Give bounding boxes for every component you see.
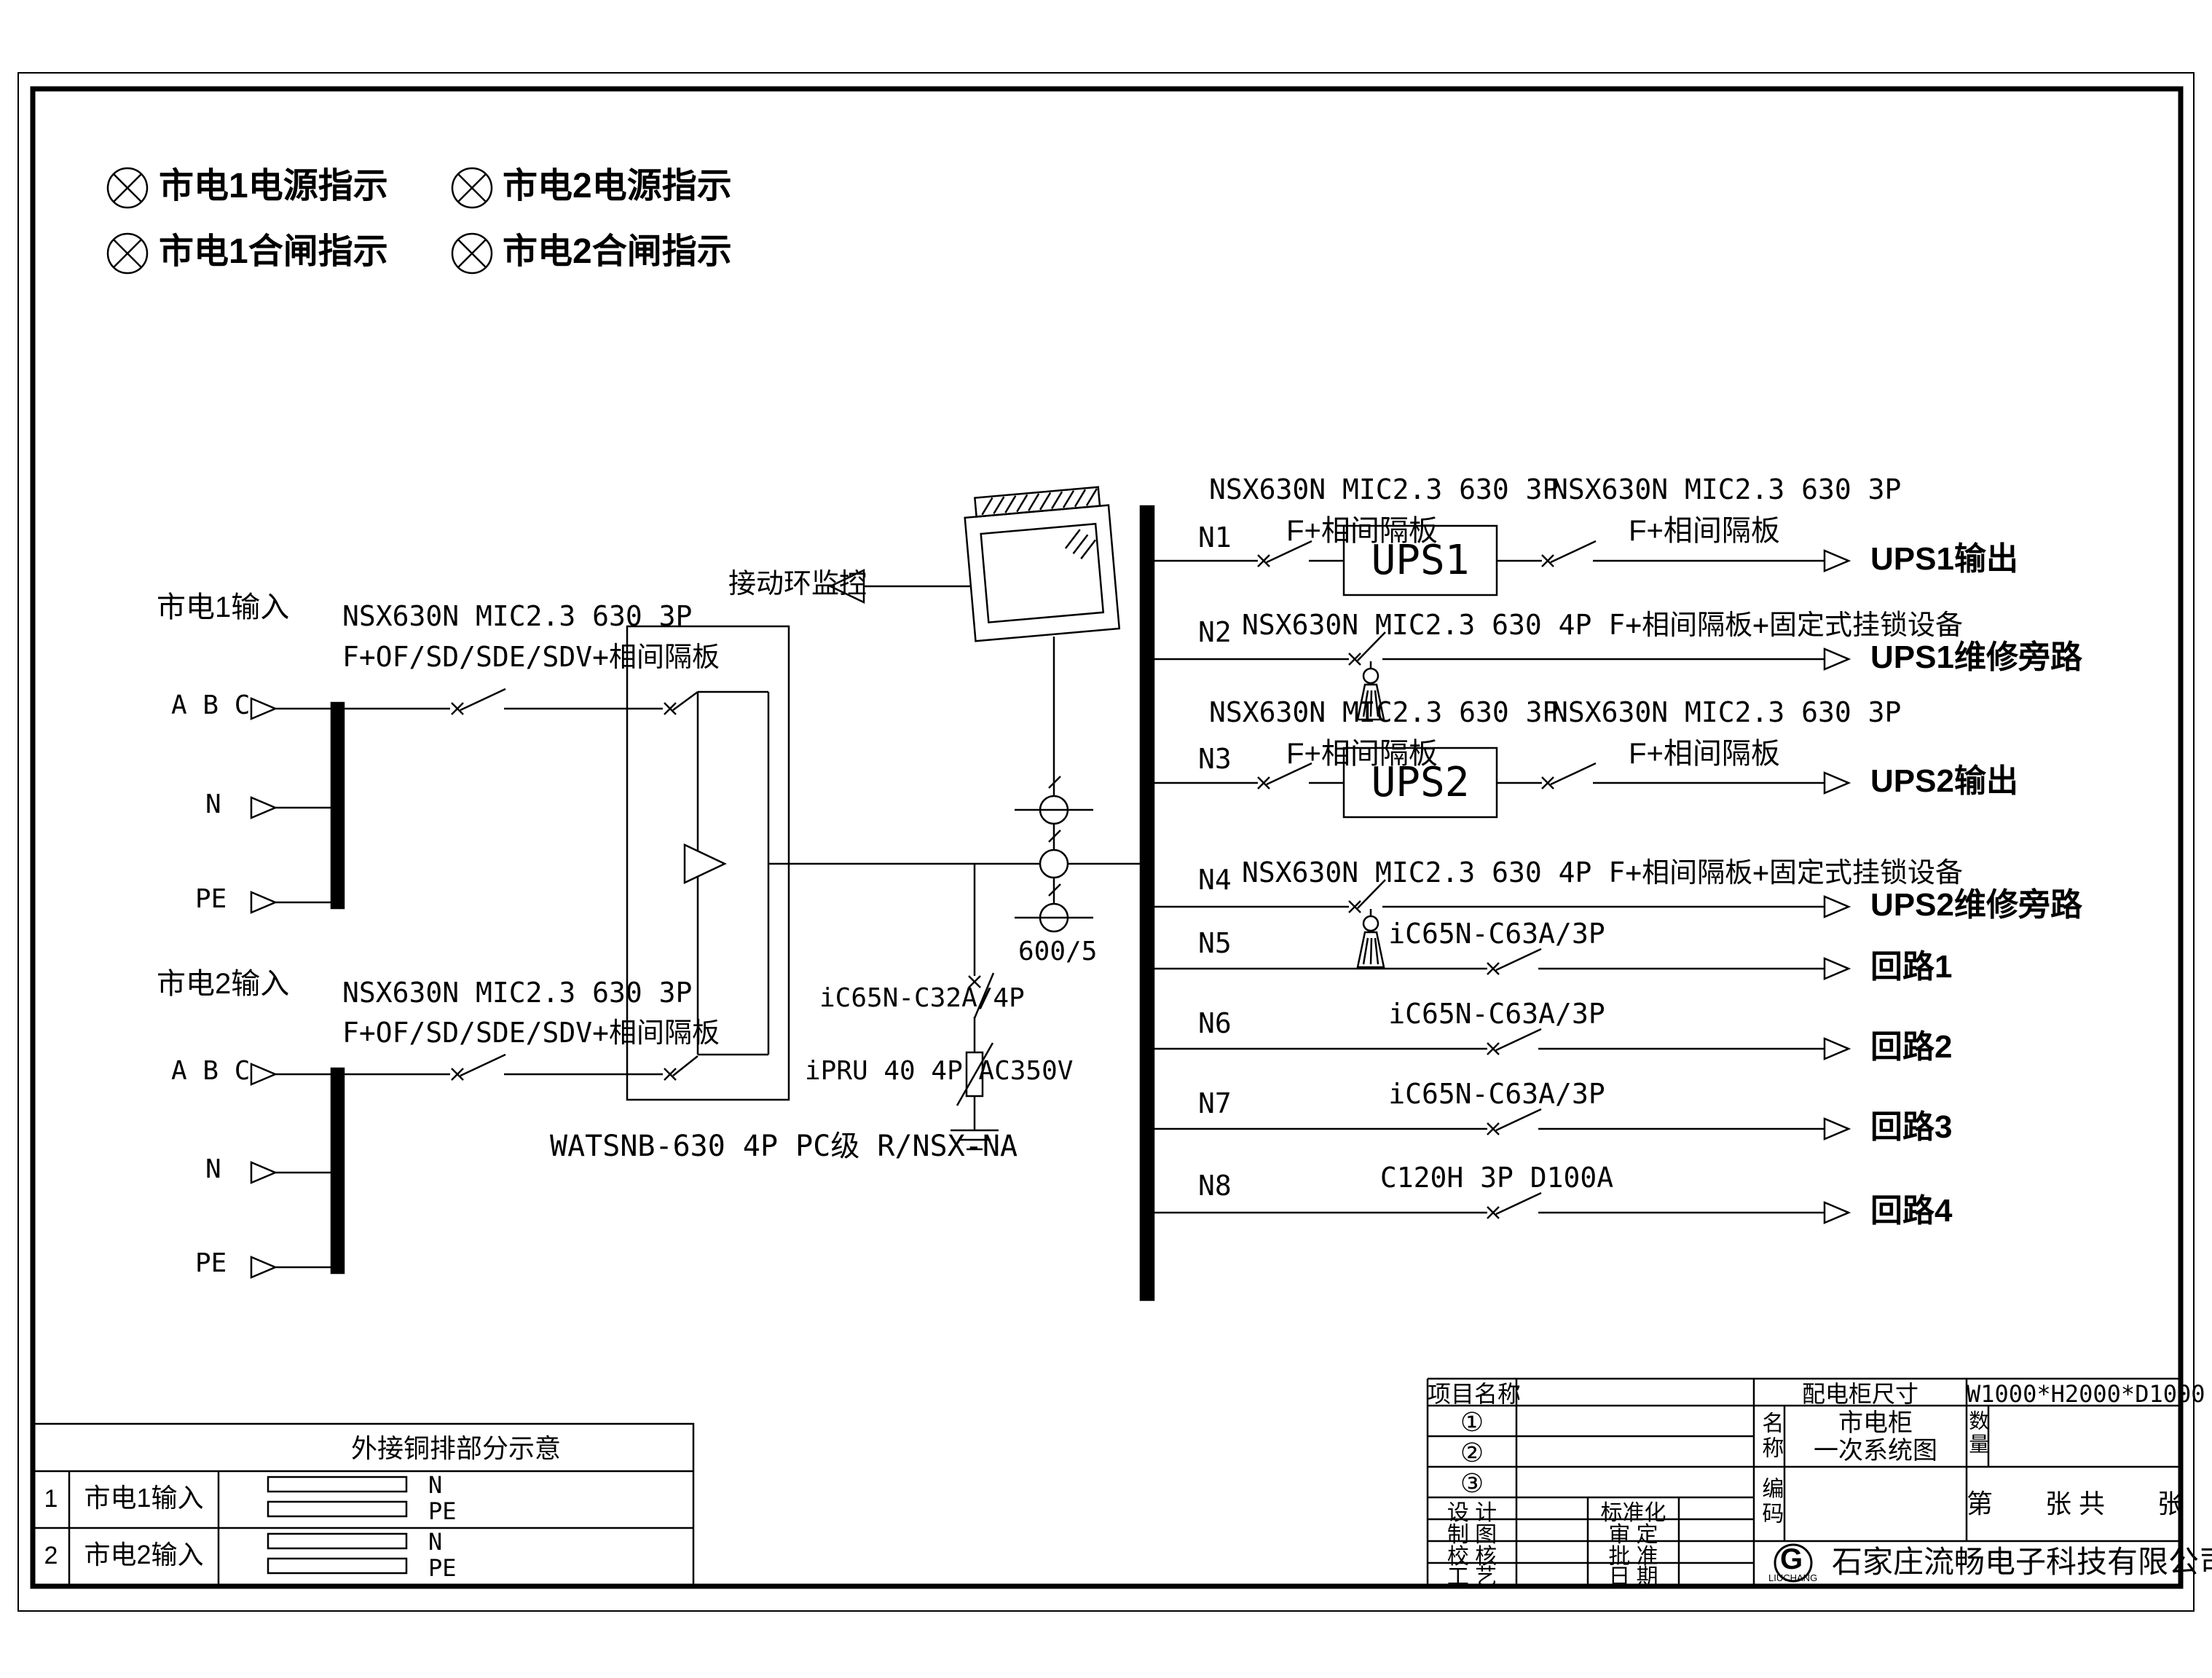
spd-breaker-label: iC65N-C32A/4P [819,985,965,1013]
tb-project-label: 项目名称 [1428,1382,1516,1407]
tb-sheet-counter: 第 张 共 张 [1967,1490,2181,1519]
n2-breaker-label: NSX630N MIC2.3 630 4P F+相间隔板+固定式挂锁设备 [1242,610,1963,640]
mains1-breaker-spec: F+OF/SD/SDE/SDV+相间隔板 [342,642,720,672]
output-circuit1: 回路1 [1870,950,1952,985]
mains2-pe-label: PE [195,1250,227,1278]
touchscreen-monitor-icon [963,487,1119,642]
tb-item3: ③ [1428,1470,1516,1498]
feeder-id-n2: N2 [1198,618,1232,647]
copper-row2-num: 2 [33,1543,69,1569]
tb-item2: ② [1428,1439,1516,1468]
output-ups1-bypass: UPS1维修旁路 [1870,640,2082,675]
legend-mains2-power: 市电2电源指示 [503,168,732,205]
tb-name-label: 名称 [1758,1411,1782,1461]
feeder-n7-wires [1154,1109,1849,1139]
copper-row2-bar2: PE [428,1556,457,1581]
feeder-id-n6: N6 [1198,1009,1232,1039]
distribution-busbar [1141,506,1154,1300]
tb-draft-label: 制 图 [1428,1524,1516,1547]
tb-std-label: 标准化 [1588,1502,1679,1525]
feeder-n6-wires [1154,1029,1849,1059]
tb-date-label: 日 期 [1588,1566,1679,1589]
mains1-pe-label: PE [195,886,227,914]
n1-breaker2-model: NSX630N MIC2.3 630 3P [1551,475,1857,505]
company-logo-icon: G [1780,1544,1803,1575]
copper-row1-name: 市电1输入 [69,1484,219,1513]
n1-breaker2-spec: F+相间隔板 [1551,516,1857,547]
copper-row2-name: 市电2输入 [69,1541,219,1569]
output-ups2-bypass: UPS2维修旁路 [1870,888,2082,923]
mains1-title: 市电1输入 [157,592,289,623]
ats-model-label: WATSNB-630 4P PC级 R/NSX-NA [550,1131,1018,1162]
n1-breaker1-model: NSX630N MIC2.3 630 3P [1209,475,1515,505]
spd-device-label: iPRU 40 4P AC350V [805,1057,958,1086]
mains2-breaker-model: NSX630N MIC2.3 630 3P [342,978,692,1008]
n3-breaker2-model: NSX630N MIC2.3 630 3P [1551,698,1857,728]
tb-name-line1: 市电柜 [1784,1410,1967,1437]
legend-mains2-close: 市电2合闸指示 [503,233,732,271]
n7-breaker-label: iC65N-C63A/3P [1351,1079,1642,1109]
tb-code-label: 编码 [1758,1477,1782,1527]
output-ups2: UPS2输出 [1870,764,2018,799]
n3-breaker2-spec: F+相间隔板 [1551,738,1857,770]
output-circuit3: 回路3 [1870,1110,1952,1145]
n6-breaker-label: iC65N-C63A/3P [1351,999,1642,1029]
mains1-neutral-label: N [205,791,221,819]
mains2-neutral-label: N [205,1156,221,1184]
company-logo-subtext: LIUCHANG [1768,1573,1817,1583]
tb-review-label: 审 定 [1588,1524,1679,1547]
feeder-id-n8: N8 [1198,1171,1232,1201]
copper-row1-bar1: N [428,1473,442,1498]
tb-item1: ① [1428,1409,1516,1437]
feeder-n8-wires [1154,1193,1849,1223]
legend-mains1-power: 市电1电源指示 [159,168,388,205]
feeder-id-n7: N7 [1198,1089,1232,1119]
feeder-id-n5: N5 [1198,929,1232,958]
tb-size-label: 配电柜尺寸 [1754,1382,1967,1407]
output-ups1: UPS1输出 [1870,542,2018,577]
tb-qty-label: 数量 [1967,1410,1988,1457]
tb-name-line2: 一次系统图 [1784,1438,1967,1465]
tb-craft-label: 工 艺 [1428,1566,1516,1589]
n4-breaker-label: NSX630N MIC2.3 630 4P F+相间隔板+固定式挂锁设备 [1242,858,1963,888]
feeder-n5-wires [1154,949,1849,979]
copper-row1-bar2: PE [428,1499,457,1524]
schematic-sheet: 市电1电源指示 市电2电源指示 市电1合闸指示 市电2合闸指示 市电1输入 NS… [0,0,2212,1678]
output-circuit2: 回路2 [1870,1030,1952,1065]
company-name: 石家庄流畅电子科技有限公司 [1832,1545,2212,1578]
tb-size-value: W1000*H2000*D1000 [1967,1382,2181,1407]
feeder-id-n4: N4 [1198,865,1232,895]
n5-breaker-label: iC65N-C63A/3P [1351,919,1642,949]
legend-mains1-close: 市电1合闸指示 [159,233,388,271]
copper-row1-num: 1 [33,1486,69,1513]
mains1-input-wires [251,689,663,913]
copper-row2-bar1: N [428,1529,442,1555]
n8-breaker-label: C120H 3P D100A [1351,1163,1642,1193]
tb-design-label: 设 计 [1428,1502,1516,1525]
monitor-label: 接动环监控 [728,570,867,599]
mains1-phase-label: A B C [171,692,250,720]
mains2-input-wires [251,1055,663,1277]
mains2-phase-label: A B C [171,1057,250,1086]
mains1-breaker-model: NSX630N MIC2.3 630 3P [342,602,692,631]
ups1-box-label: UPS1 [1344,539,1497,583]
mains2-title: 市电2输入 [157,969,289,1000]
mains2-breaker-spec: F+OF/SD/SDE/SDV+相间隔板 [342,1018,720,1048]
current-transformer-symbol [1015,637,1093,932]
ups2-box-label: UPS2 [1344,761,1497,805]
n3-breaker1-model: NSX630N MIC2.3 630 3P [1209,698,1515,728]
copper-table-title: 外接铜排部分示意 [219,1435,693,1463]
output-circuit4: 回路4 [1870,1194,1952,1229]
ct-ratio-label: 600/5 [1018,938,1097,966]
